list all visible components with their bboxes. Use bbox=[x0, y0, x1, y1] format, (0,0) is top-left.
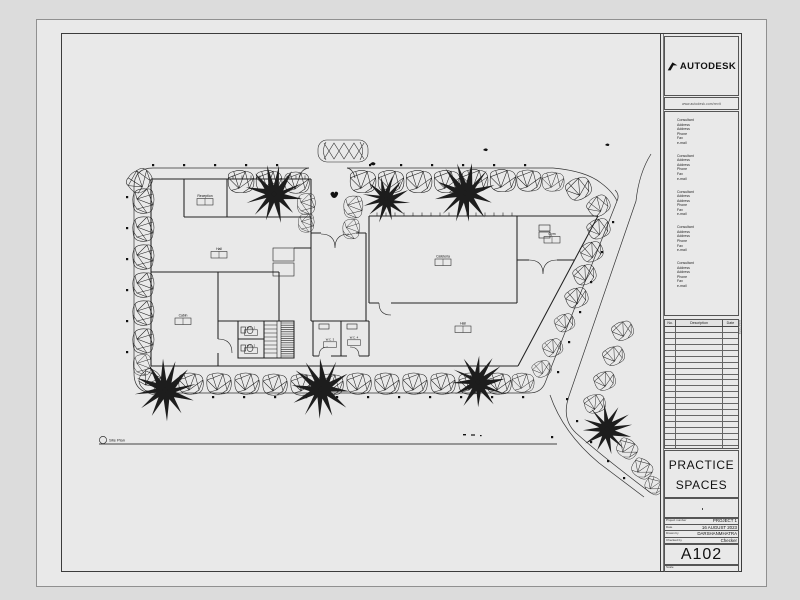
brand-name: AUTODESK bbox=[680, 61, 736, 72]
room-tag-cabin: Cabin bbox=[175, 314, 191, 325]
scale-box: Scale bbox=[664, 564, 739, 572]
page: { "titleblock": { "brand": "AUTODESK", "… bbox=[0, 0, 800, 600]
site-plan-canvas: Reception Hall Cabin Cafeteria Gym Hall … bbox=[62, 34, 660, 570]
consultant-block: ConsultantAddressAddressPhoneFaxe-mail bbox=[677, 154, 738, 181]
svg-text:Cafeteria: Cafeteria bbox=[436, 255, 450, 259]
consultant-block: ConsultantAddressAddressPhoneFaxe-mail bbox=[677, 225, 738, 252]
svg-text:Cabin: Cabin bbox=[179, 314, 188, 318]
website-text: www.autodesk.com/revit bbox=[682, 102, 721, 106]
title-block: AUTODESK www.autodesk.com/revit Consulta… bbox=[660, 34, 741, 571]
svg-text:Hall: Hall bbox=[216, 247, 222, 251]
consultant-block: ConsultantAddressAddressPhoneFaxe-mail bbox=[677, 118, 738, 145]
svg-text:W.C. 1: W.C. 1 bbox=[247, 326, 256, 330]
svg-text:W.C. 3: W.C. 3 bbox=[326, 338, 335, 342]
plot-stamp: 8/16/2023 bbox=[737, 320, 741, 334]
room-tag-hall-left: Hall bbox=[211, 247, 227, 258]
palm-trees bbox=[126, 156, 636, 459]
room-tag-wc2: W.C. 2 bbox=[245, 344, 258, 354]
revision-header: No. Description Date bbox=[665, 320, 738, 327]
room-tag-cafeteria: Cafeteria bbox=[435, 255, 451, 266]
room-tag-gym: Gym bbox=[544, 232, 560, 243]
project-title-line1: PRACTICE bbox=[669, 458, 734, 472]
consultant-block: ConsultantAddressAddressPhoneFaxe-mail bbox=[677, 190, 738, 217]
revision-table: No. Description Date bbox=[664, 319, 739, 449]
website-strip: www.autodesk.com/revit bbox=[664, 97, 739, 110]
project-title-line2: SPACES bbox=[676, 478, 727, 492]
revision-col-no: No. bbox=[665, 320, 675, 326]
sheet-number: A102 bbox=[681, 546, 722, 564]
consultant-block: ConsultantAddressAddressPhoneFaxe-mail bbox=[677, 261, 738, 288]
svg-text:Reception: Reception bbox=[197, 194, 212, 198]
drawing-sheet: Reception Hall Cabin Cafeteria Gym Hall … bbox=[36, 19, 767, 587]
sheet-number-box: A102 bbox=[664, 543, 739, 566]
consultant-list: ConsultantAddressAddressPhoneFaxe-mailCo… bbox=[664, 111, 739, 316]
svg-text:W.C. 4: W.C. 4 bbox=[350, 336, 359, 340]
project-fields: Project number PROJECT 1 Date 16 AUGUST … bbox=[664, 517, 739, 545]
room-tags: Reception Hall Cabin Cafeteria Gym Hall … bbox=[175, 194, 560, 353]
autodesk-logo-icon bbox=[667, 61, 678, 71]
drawing-name-box bbox=[664, 497, 739, 519]
room-tag-wc4: W.C. 4 bbox=[348, 336, 361, 346]
scale-label: Scale bbox=[666, 565, 674, 569]
room-tag-wc3: W.C. 3 bbox=[324, 338, 337, 348]
project-title: PRACTICE SPACES bbox=[664, 450, 739, 499]
revision-col-description: Description bbox=[675, 320, 722, 326]
svg-text:Gym: Gym bbox=[548, 232, 555, 236]
svg-text:W.C. 2: W.C. 2 bbox=[247, 344, 256, 348]
svg-text:Site Plan: Site Plan bbox=[109, 438, 125, 443]
revision-row bbox=[665, 446, 738, 449]
driveway-hedge bbox=[318, 140, 368, 162]
room-tag-wc1: W.C. 1 bbox=[245, 326, 258, 336]
view-title: Site Plan bbox=[99, 436, 557, 444]
room-tag-reception: Reception bbox=[197, 194, 213, 205]
room-tag-hall-right: Hall bbox=[455, 322, 471, 333]
sheet-frame: Reception Hall Cabin Cafeteria Gym Hall … bbox=[61, 33, 742, 572]
svg-text:Hall: Hall bbox=[460, 322, 466, 326]
boundary-posts bbox=[126, 164, 625, 479]
logo-box: AUTODESK bbox=[664, 36, 739, 96]
building-walls bbox=[151, 179, 598, 366]
drawing-name-dot bbox=[702, 508, 704, 510]
revision-col-date: Date bbox=[722, 320, 738, 326]
revision-rows bbox=[665, 327, 738, 449]
